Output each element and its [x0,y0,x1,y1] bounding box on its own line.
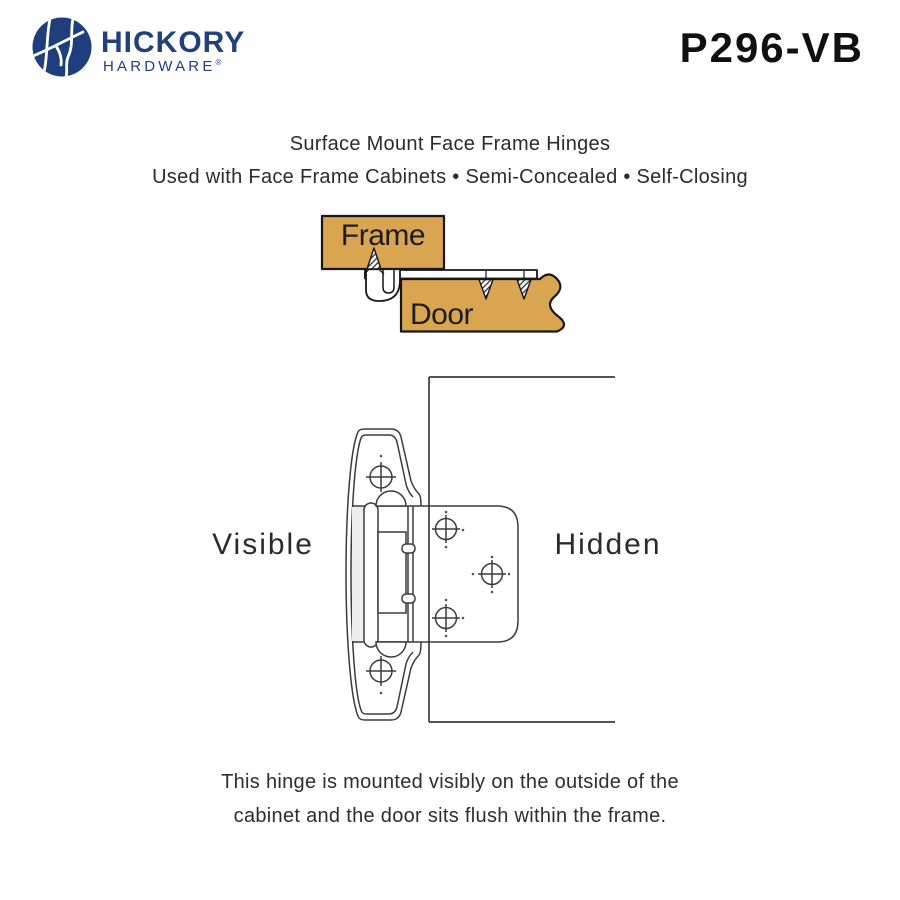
hickory-logo-icon [33,18,92,78]
screw-hole-icon [366,656,396,686]
page-subtitle: Used with Face Frame Cabinets • Semi-Con… [0,166,900,189]
screw-hole-icon [366,462,396,492]
screw-hole-icon [432,604,460,632]
knuckle-top [376,491,406,506]
brand-name: HICKORY [101,26,245,60]
product-code: P296-VB [680,24,864,72]
screw-hole-icon [432,515,460,543]
screw-hole-icon [478,560,506,588]
tab-top [402,544,415,553]
hinge-edge-lines [408,506,413,642]
brand-subname-text: HARDWARE [103,58,216,75]
page-root: HICKORY HARDWARE® P296-VB Surface Mount … [0,0,900,900]
registered-mark: ® [216,58,222,67]
hinge-spine [364,503,378,647]
brand-subname: HARDWARE® [103,58,221,75]
visible-label: Visible [163,528,363,562]
caption-line-1: This hinge is mounted visibly on the out… [0,771,900,794]
page-title: Surface Mount Face Frame Hinges [0,133,900,156]
caption-line-2: cabinet and the door sits flush within t… [0,805,900,828]
tab-bottom [402,594,415,603]
door-label: Door [410,298,473,332]
hidden-label: Hidden [508,528,708,562]
knuckle-bottom [376,642,406,657]
frame-label: Frame [322,219,444,253]
